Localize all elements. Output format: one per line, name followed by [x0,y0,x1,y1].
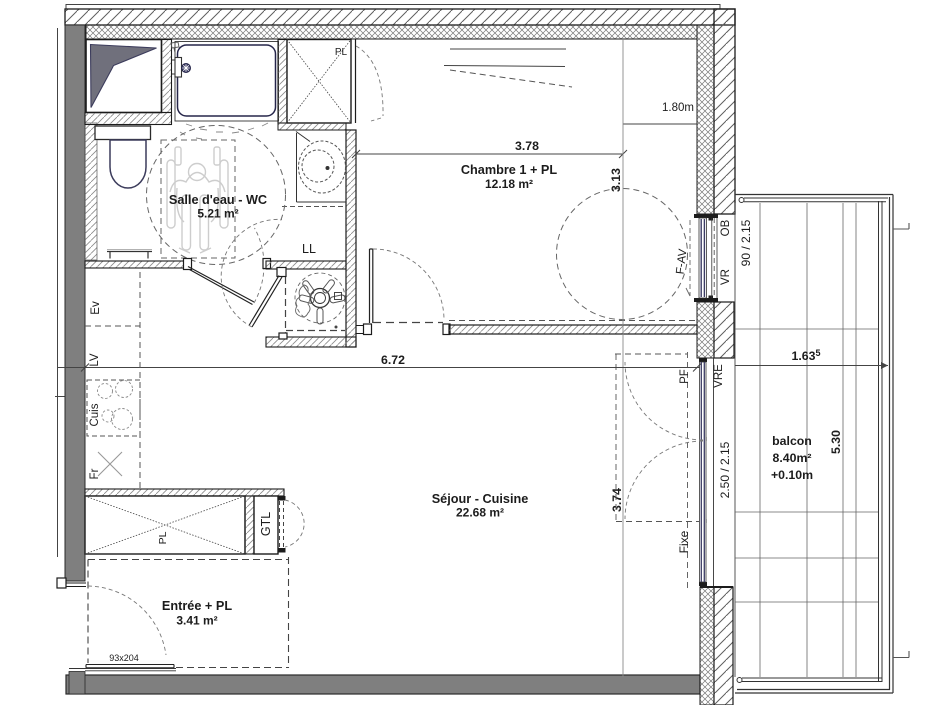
svg-text:5.21 m²: 5.21 m² [197,207,238,221]
svg-text:3.41 m²: 3.41 m² [176,614,217,628]
svg-text:5.30: 5.30 [829,430,843,454]
svg-text:93x204: 93x204 [109,653,139,663]
svg-text:3.74: 3.74 [610,488,624,512]
svg-text:1.80m: 1.80m [662,102,694,114]
svg-text:PF: PF [679,369,691,384]
svg-text:3.13: 3.13 [609,168,623,192]
svg-text:8.40m²: 8.40m² [773,451,812,465]
svg-text:Entrée + PL: Entrée + PL [162,599,232,613]
svg-text:PL: PL [335,47,348,58]
svg-text:Ev: Ev [90,301,102,315]
svg-text:GTL: GTL [259,512,273,536]
svg-text:Séjour - Cuisine: Séjour - Cuisine [432,492,529,506]
svg-text:PL: PL [157,531,169,544]
svg-text:12.18 m²: 12.18 m² [485,177,533,191]
svg-text:2.50 / 2.15: 2.50 / 2.15 [718,441,732,498]
svg-text:Fr: Fr [89,468,101,479]
svg-text:VRE: VRE [713,364,725,388]
svg-text:balcon: balcon [772,434,812,448]
svg-text:Fixe: Fixe [677,530,691,553]
svg-text:OB: OB [720,219,732,236]
svg-text:Salle d'eau - WC: Salle d'eau - WC [169,193,267,207]
svg-text:+0.10m: +0.10m [771,468,813,482]
svg-text:Cuis: Cuis [89,403,101,426]
svg-text:VR: VR [720,269,732,285]
svg-text:90 / 2.15: 90 / 2.15 [739,219,753,266]
svg-text:6.72: 6.72 [381,353,405,367]
svg-text:3.78: 3.78 [515,139,539,153]
svg-text:22.68 m²: 22.68 m² [456,506,504,520]
svg-text:LV: LV [89,353,101,367]
svg-text:Chambre 1 + PL: Chambre 1 + PL [461,163,557,177]
svg-text:LL: LL [302,242,316,256]
